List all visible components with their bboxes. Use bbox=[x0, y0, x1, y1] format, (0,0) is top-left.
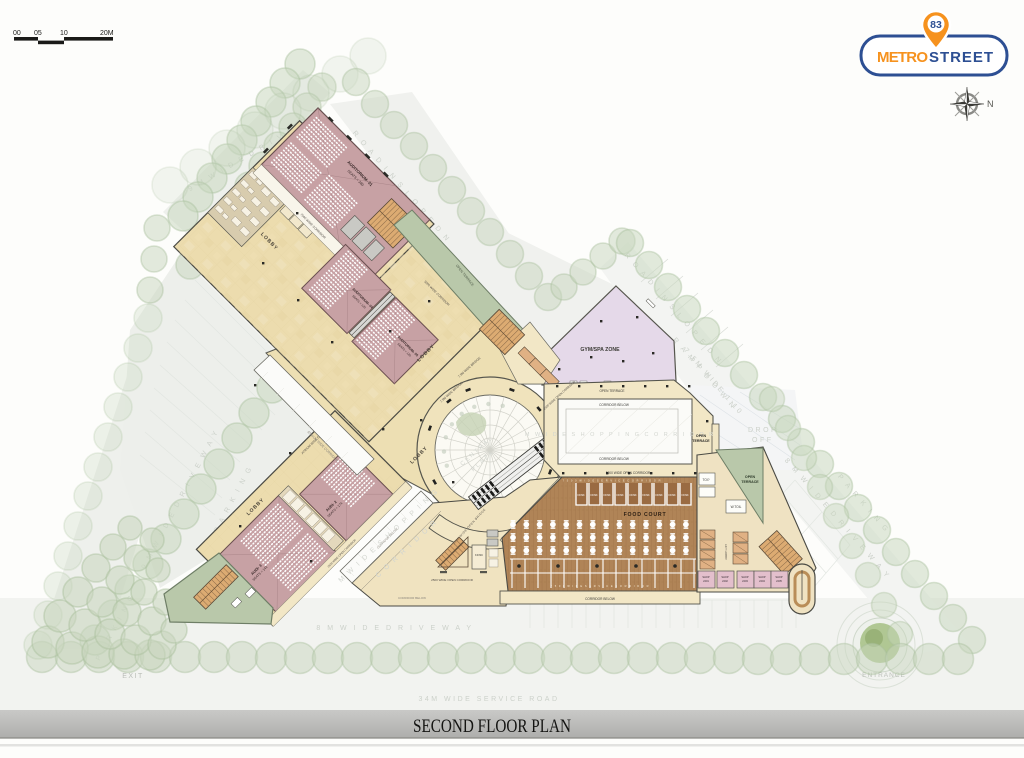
svg-text:W.TOIL: W.TOIL bbox=[731, 505, 742, 509]
svg-text:KIOSK: KIOSK bbox=[590, 494, 598, 497]
svg-text:TERRACE: TERRACE bbox=[741, 480, 759, 484]
svg-text:OFF: OFF bbox=[752, 437, 774, 444]
svg-text:00: 00 bbox=[13, 30, 21, 37]
svg-text:7 5 0 0 W I D E S E R V I: 7 5 0 0 W I D E S E R V I C E C O R R I … bbox=[551, 584, 650, 588]
svg-text:SHOP: SHOP bbox=[775, 575, 783, 579]
svg-text:GYM/SPA ZONE: GYM/SPA ZONE bbox=[580, 347, 620, 353]
svg-text:LIFT LOBBY: LIFT LOBBY bbox=[724, 544, 728, 560]
svg-text:STREET: STREET bbox=[929, 49, 993, 66]
svg-text:SHOP: SHOP bbox=[721, 575, 729, 579]
svg-text:2404: 2404 bbox=[759, 579, 765, 583]
svg-text:OPEN TERRACE: OPEN TERRACE bbox=[599, 389, 624, 393]
svg-text:2500 WIDE OPEN CORRIDOR: 2500 WIDE OPEN CORRIDOR bbox=[431, 578, 474, 582]
svg-text:SHOP: SHOP bbox=[741, 575, 749, 579]
svg-text:KIOSK: KIOSK bbox=[681, 494, 689, 497]
svg-text:2405: 2405 bbox=[776, 579, 782, 583]
svg-text:KIOSK: KIOSK bbox=[577, 494, 585, 497]
svg-text:METRO: METRO bbox=[877, 49, 928, 66]
svg-text:KIOSK: KIOSK bbox=[616, 494, 624, 497]
svg-text:KIOSK: KIOSK bbox=[629, 494, 637, 497]
svg-text:8 M W I D E D R I V E W A: 8 M W I D E D R I V E W A Y bbox=[316, 625, 473, 632]
svg-text:CORRIDOR BELOW: CORRIDOR BELOW bbox=[585, 597, 615, 601]
svg-text:05: 05 bbox=[34, 30, 42, 37]
svg-text:M W I D E S H O P P I N G: M W I D E S H O P P I N G C O R R I D O … bbox=[525, 432, 715, 438]
svg-text:2403: 2403 bbox=[742, 579, 748, 583]
svg-text:SHOP: SHOP bbox=[702, 575, 710, 579]
svg-text:OPEN: OPEN bbox=[745, 475, 756, 479]
svg-text:83: 83 bbox=[930, 19, 942, 31]
svg-text:KIOSK: KIOSK bbox=[603, 494, 611, 497]
svg-text:7 5 0 0 W I D E S E R V I: 7 5 0 0 W I D E S E R V I C E C O R R I … bbox=[563, 479, 662, 483]
svg-text:2401: 2401 bbox=[703, 579, 709, 583]
svg-text:KIOSK: KIOSK bbox=[642, 494, 650, 497]
svg-text:N: N bbox=[987, 99, 994, 109]
svg-text:KIOSK: KIOSK bbox=[655, 494, 663, 497]
svg-text:CORRIDOR BELOW: CORRIDOR BELOW bbox=[398, 596, 426, 600]
svg-text:FOOD COURT: FOOD COURT bbox=[624, 512, 667, 518]
svg-text:EXIT: EXIT bbox=[122, 673, 144, 680]
svg-text:2402: 2402 bbox=[722, 579, 728, 583]
svg-text:10: 10 bbox=[60, 30, 68, 37]
svg-text:TOI?: TOI? bbox=[702, 478, 709, 482]
svg-text:CORRIDOR BELOW: CORRIDOR BELOW bbox=[599, 403, 629, 407]
svg-text:KIOSK: KIOSK bbox=[668, 494, 676, 497]
svg-text:SECOND FLOOR PLAN: SECOND FLOOR PLAN bbox=[413, 716, 571, 737]
svg-text:20M: 20M bbox=[100, 30, 114, 37]
svg-text:34M WIDE SERVICE ROAD: 34M WIDE SERVICE ROAD bbox=[418, 696, 559, 703]
svg-text:TERRACE: TERRACE bbox=[692, 439, 710, 443]
svg-text:OPEN: OPEN bbox=[696, 434, 707, 438]
svg-text:SHOP: SHOP bbox=[758, 575, 766, 579]
svg-text:CORRIDOR BELOW: CORRIDOR BELOW bbox=[599, 457, 629, 461]
svg-text:KIOSK: KIOSK bbox=[475, 553, 483, 557]
